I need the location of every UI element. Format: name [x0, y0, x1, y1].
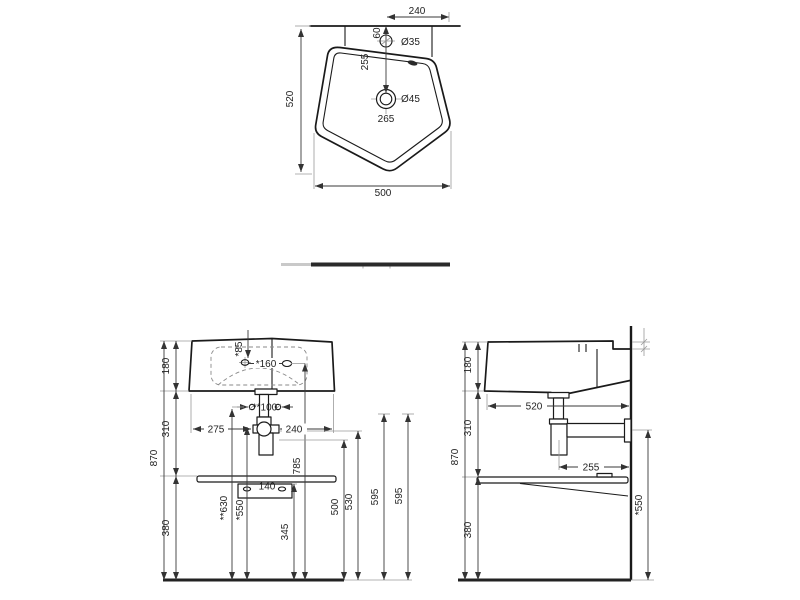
- dim-top-d45: Ø45: [401, 94, 420, 105]
- dim-front-530: 530: [344, 493, 355, 510]
- dim-front-630: **630: [219, 495, 230, 520]
- dim-front-870: 870: [149, 449, 160, 466]
- shelf-hanger-tab: [597, 474, 612, 478]
- dim-front-595b: 595: [394, 487, 405, 504]
- dim-front-345: 345: [280, 523, 291, 540]
- dim-side-380: 380: [463, 521, 474, 538]
- dim-top-255: 255: [360, 53, 371, 70]
- dim-front-550: *550: [235, 499, 246, 520]
- dim-top-265: 265: [378, 114, 395, 125]
- trap-side: [548, 393, 631, 456]
- dim-front-140: 140: [259, 482, 276, 493]
- dim-top-500: 500: [375, 188, 392, 199]
- dim-side-520: 520: [526, 402, 543, 413]
- shelf-side: [477, 477, 628, 483]
- dim-front-160: *160: [256, 359, 277, 370]
- second-hole-front: [282, 361, 291, 367]
- shelf-support-side: [520, 484, 628, 497]
- top-view: 240 60 Ø35 255 Ø45 265 520 500: [285, 6, 460, 199]
- dim-top-d35: Ø35: [401, 37, 420, 48]
- dim-front-180: 180: [161, 357, 172, 374]
- side-view: 180 520 310 870 255 *550 380: [450, 326, 654, 580]
- tap-hole-front: [239, 357, 251, 368]
- waste-pipe-side: [567, 424, 625, 438]
- edge-profile-strip: [281, 263, 450, 269]
- dim-side-550: *550: [634, 494, 645, 515]
- basin-hidden-bowl: [218, 368, 300, 385]
- dim-top-520: 520: [285, 90, 296, 107]
- dim-side-870: 870: [450, 448, 461, 465]
- dim-front-785: 785: [292, 457, 303, 474]
- dim-side-180: 180: [463, 356, 474, 373]
- overflow-hole: [407, 59, 418, 66]
- dim-front-500: 500: [330, 498, 341, 515]
- dim-front-100: **100: [253, 403, 278, 414]
- dim-front-310: 310: [161, 420, 172, 437]
- washbasin-drawing: 240 60 Ø35 255 Ø45 265 520 500: [0, 0, 800, 600]
- dim-front-380: 380: [161, 519, 172, 536]
- basin-side-outline: [485, 341, 631, 394]
- dim-front-275: 275: [208, 425, 225, 436]
- basin-outline-outer: [316, 47, 450, 170]
- dim-side-310: 310: [463, 419, 474, 436]
- trap-front: [253, 389, 279, 455]
- wall-flange: [625, 419, 632, 442]
- dim-front-595a: 595: [370, 488, 381, 505]
- technical-drawing-canvas: 240 60 Ø35 255 Ø45 265 520 500: [0, 0, 800, 600]
- dim-top-60: 60: [372, 27, 383, 39]
- dim-top-240: 240: [409, 6, 426, 17]
- dim-front-85: *85: [234, 341, 245, 356]
- front-view-dimensions: [160, 330, 414, 580]
- front-view: 140: [149, 330, 414, 580]
- dim-front-240: 240: [286, 425, 303, 436]
- dim-side-255: 255: [583, 463, 600, 474]
